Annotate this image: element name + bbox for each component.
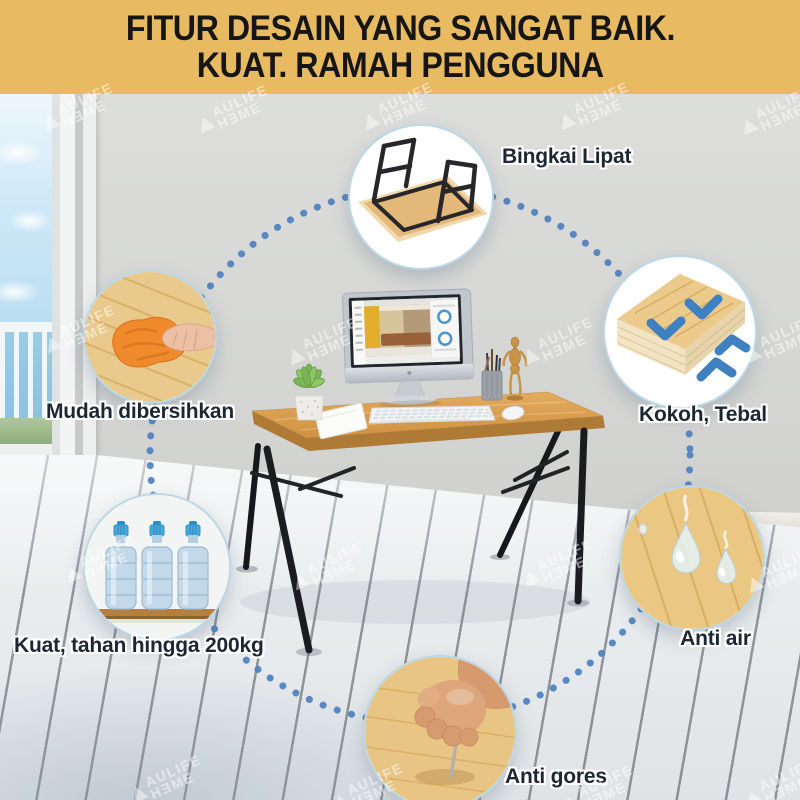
headline-line-1: FITUR DESAIN YANG SANGAT BAIK. (102, 10, 699, 47)
feature-photo-mudah-dibersihkan (83, 270, 217, 404)
feature-label-kuat-200kg: Kuat, tahan hingga 200kg (14, 634, 264, 658)
water-gallons-illustration (85, 495, 229, 639)
feature-photo-bingkai-lipat (348, 124, 494, 270)
feature-label-anti-gores: Anti gores (505, 765, 607, 789)
feature-label-anti-air: Anti air (653, 627, 778, 651)
wooden-mannequin (504, 337, 527, 400)
feature-photo-anti-gores (363, 655, 517, 800)
product-infographic: FITUR DESAIN YANG SANGAT BAIK. KUAT. RAM… (0, 0, 800, 800)
desk-front-right-leg (578, 431, 584, 601)
feature-label-bingkai-lipat: Bingkai Lipat (502, 145, 631, 169)
headline-banner: FITUR DESAIN YANG SANGAT BAIK. KUAT. RAM… (0, 0, 800, 94)
succulent-plant (293, 364, 326, 420)
pencil-cup (482, 349, 502, 400)
headline-line-2: KUAT. RAMAH PENGGUNA (179, 47, 621, 84)
feature-photo-kuat-200kg (83, 493, 231, 641)
plant-pot (295, 396, 324, 420)
desktop-monitor (342, 289, 474, 410)
waterproof-illustration (621, 487, 763, 629)
feature-photo-kokoh-tebal (603, 255, 757, 409)
screen-room-render (364, 304, 432, 356)
easy-clean-illustration (85, 272, 215, 402)
folded-frame-illustration (350, 126, 492, 268)
thick-board-illustration (605, 257, 755, 407)
keyboard (369, 406, 495, 423)
screen-side-panel (430, 299, 460, 358)
feature-photo-anti-air (619, 485, 765, 631)
feature-label-kokoh-tebal: Kokoh, Tebal (618, 403, 788, 427)
desk-front-left-leg (267, 449, 309, 650)
water-gallon-bottles (106, 521, 208, 609)
scratch-resistant-illustration (365, 657, 515, 800)
feature-label-mudah-dibersihkan: Mudah dibersihkan (46, 400, 234, 424)
